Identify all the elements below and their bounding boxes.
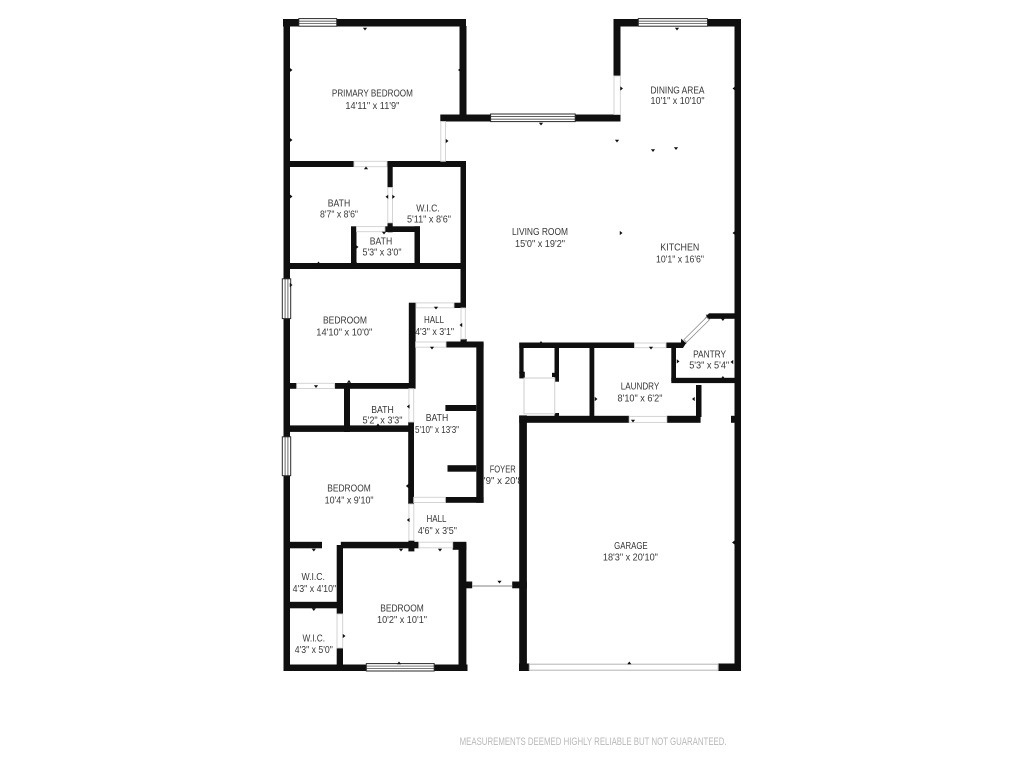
svg-text:5'10" x 13'3": 5'10" x 13'3"	[415, 425, 459, 436]
svg-text:4'3" x 5'0": 4'3" x 5'0"	[295, 645, 333, 656]
svg-text:5'11" x 8'6": 5'11" x 8'6"	[407, 215, 451, 226]
svg-text:8'7" x 8'6": 8'7" x 8'6"	[320, 210, 358, 221]
svg-text:14'10" x 10'0": 14'10" x 10'0"	[316, 327, 372, 338]
svg-text:10'1" x 10'10": 10'1" x 10'10"	[651, 96, 705, 107]
svg-text:5'2" x 3'3": 5'2" x 3'3"	[363, 415, 403, 426]
svg-text:LIVING ROOM: LIVING ROOM	[512, 227, 568, 238]
svg-text:DINING AREA: DINING AREA	[651, 86, 705, 97]
svg-text:PRIMARY BEDROOM: PRIMARY BEDROOM	[332, 88, 413, 99]
svg-text:FOYER: FOYER	[490, 465, 516, 476]
svg-text:W.I.C.: W.I.C.	[303, 633, 326, 644]
svg-text:4'6" x 3'5": 4'6" x 3'5"	[418, 526, 457, 537]
svg-text:5'3" x 3'0": 5'3" x 3'0"	[363, 247, 402, 258]
svg-text:PANTRY: PANTRY	[693, 350, 726, 361]
svg-text:BEDROOM: BEDROOM	[327, 484, 371, 495]
svg-text:W.I.C.: W.I.C.	[416, 203, 440, 214]
svg-text:4'3" x 4'10": 4'3" x 4'10"	[293, 584, 337, 595]
svg-text:HALL: HALL	[427, 514, 447, 525]
svg-text:LAUNDRY: LAUNDRY	[621, 381, 660, 392]
svg-text:MEASUREMENTS DEEMED HIGHLY REL: MEASUREMENTS DEEMED HIGHLY RELIABLE BUT …	[460, 736, 727, 748]
svg-text:10'2" x 10'1": 10'2" x 10'1"	[377, 615, 427, 626]
svg-text:4'3" x 3'1": 4'3" x 3'1"	[415, 327, 454, 338]
svg-text:BEDROOM: BEDROOM	[380, 604, 424, 615]
svg-text:8'10" x 6'2": 8'10" x 6'2"	[618, 393, 663, 404]
svg-text:KITCHEN: KITCHEN	[660, 242, 699, 253]
svg-text:BEDROOM: BEDROOM	[323, 315, 367, 326]
svg-text:GARAGE: GARAGE	[614, 541, 648, 552]
svg-text:BATH: BATH	[370, 236, 393, 247]
svg-text:BATH: BATH	[328, 198, 351, 209]
svg-text:5'3" x 5'4": 5'3" x 5'4"	[689, 360, 729, 371]
svg-text:10'4" x 9'10": 10'4" x 9'10"	[325, 496, 374, 507]
svg-text:14'11" x 11'9": 14'11" x 11'9"	[345, 101, 399, 112]
svg-text:10'1" x 16'6": 10'1" x 16'6"	[656, 255, 704, 266]
svg-text:HALL: HALL	[424, 315, 444, 326]
svg-text:BATH: BATH	[371, 405, 394, 416]
svg-text:BATH: BATH	[426, 413, 449, 424]
svg-text:W.I.C.: W.I.C.	[301, 572, 325, 583]
svg-text:18'3" x 20'10": 18'3" x 20'10"	[603, 553, 658, 564]
svg-text:15'0" x 19'2": 15'0" x 19'2"	[515, 239, 565, 250]
